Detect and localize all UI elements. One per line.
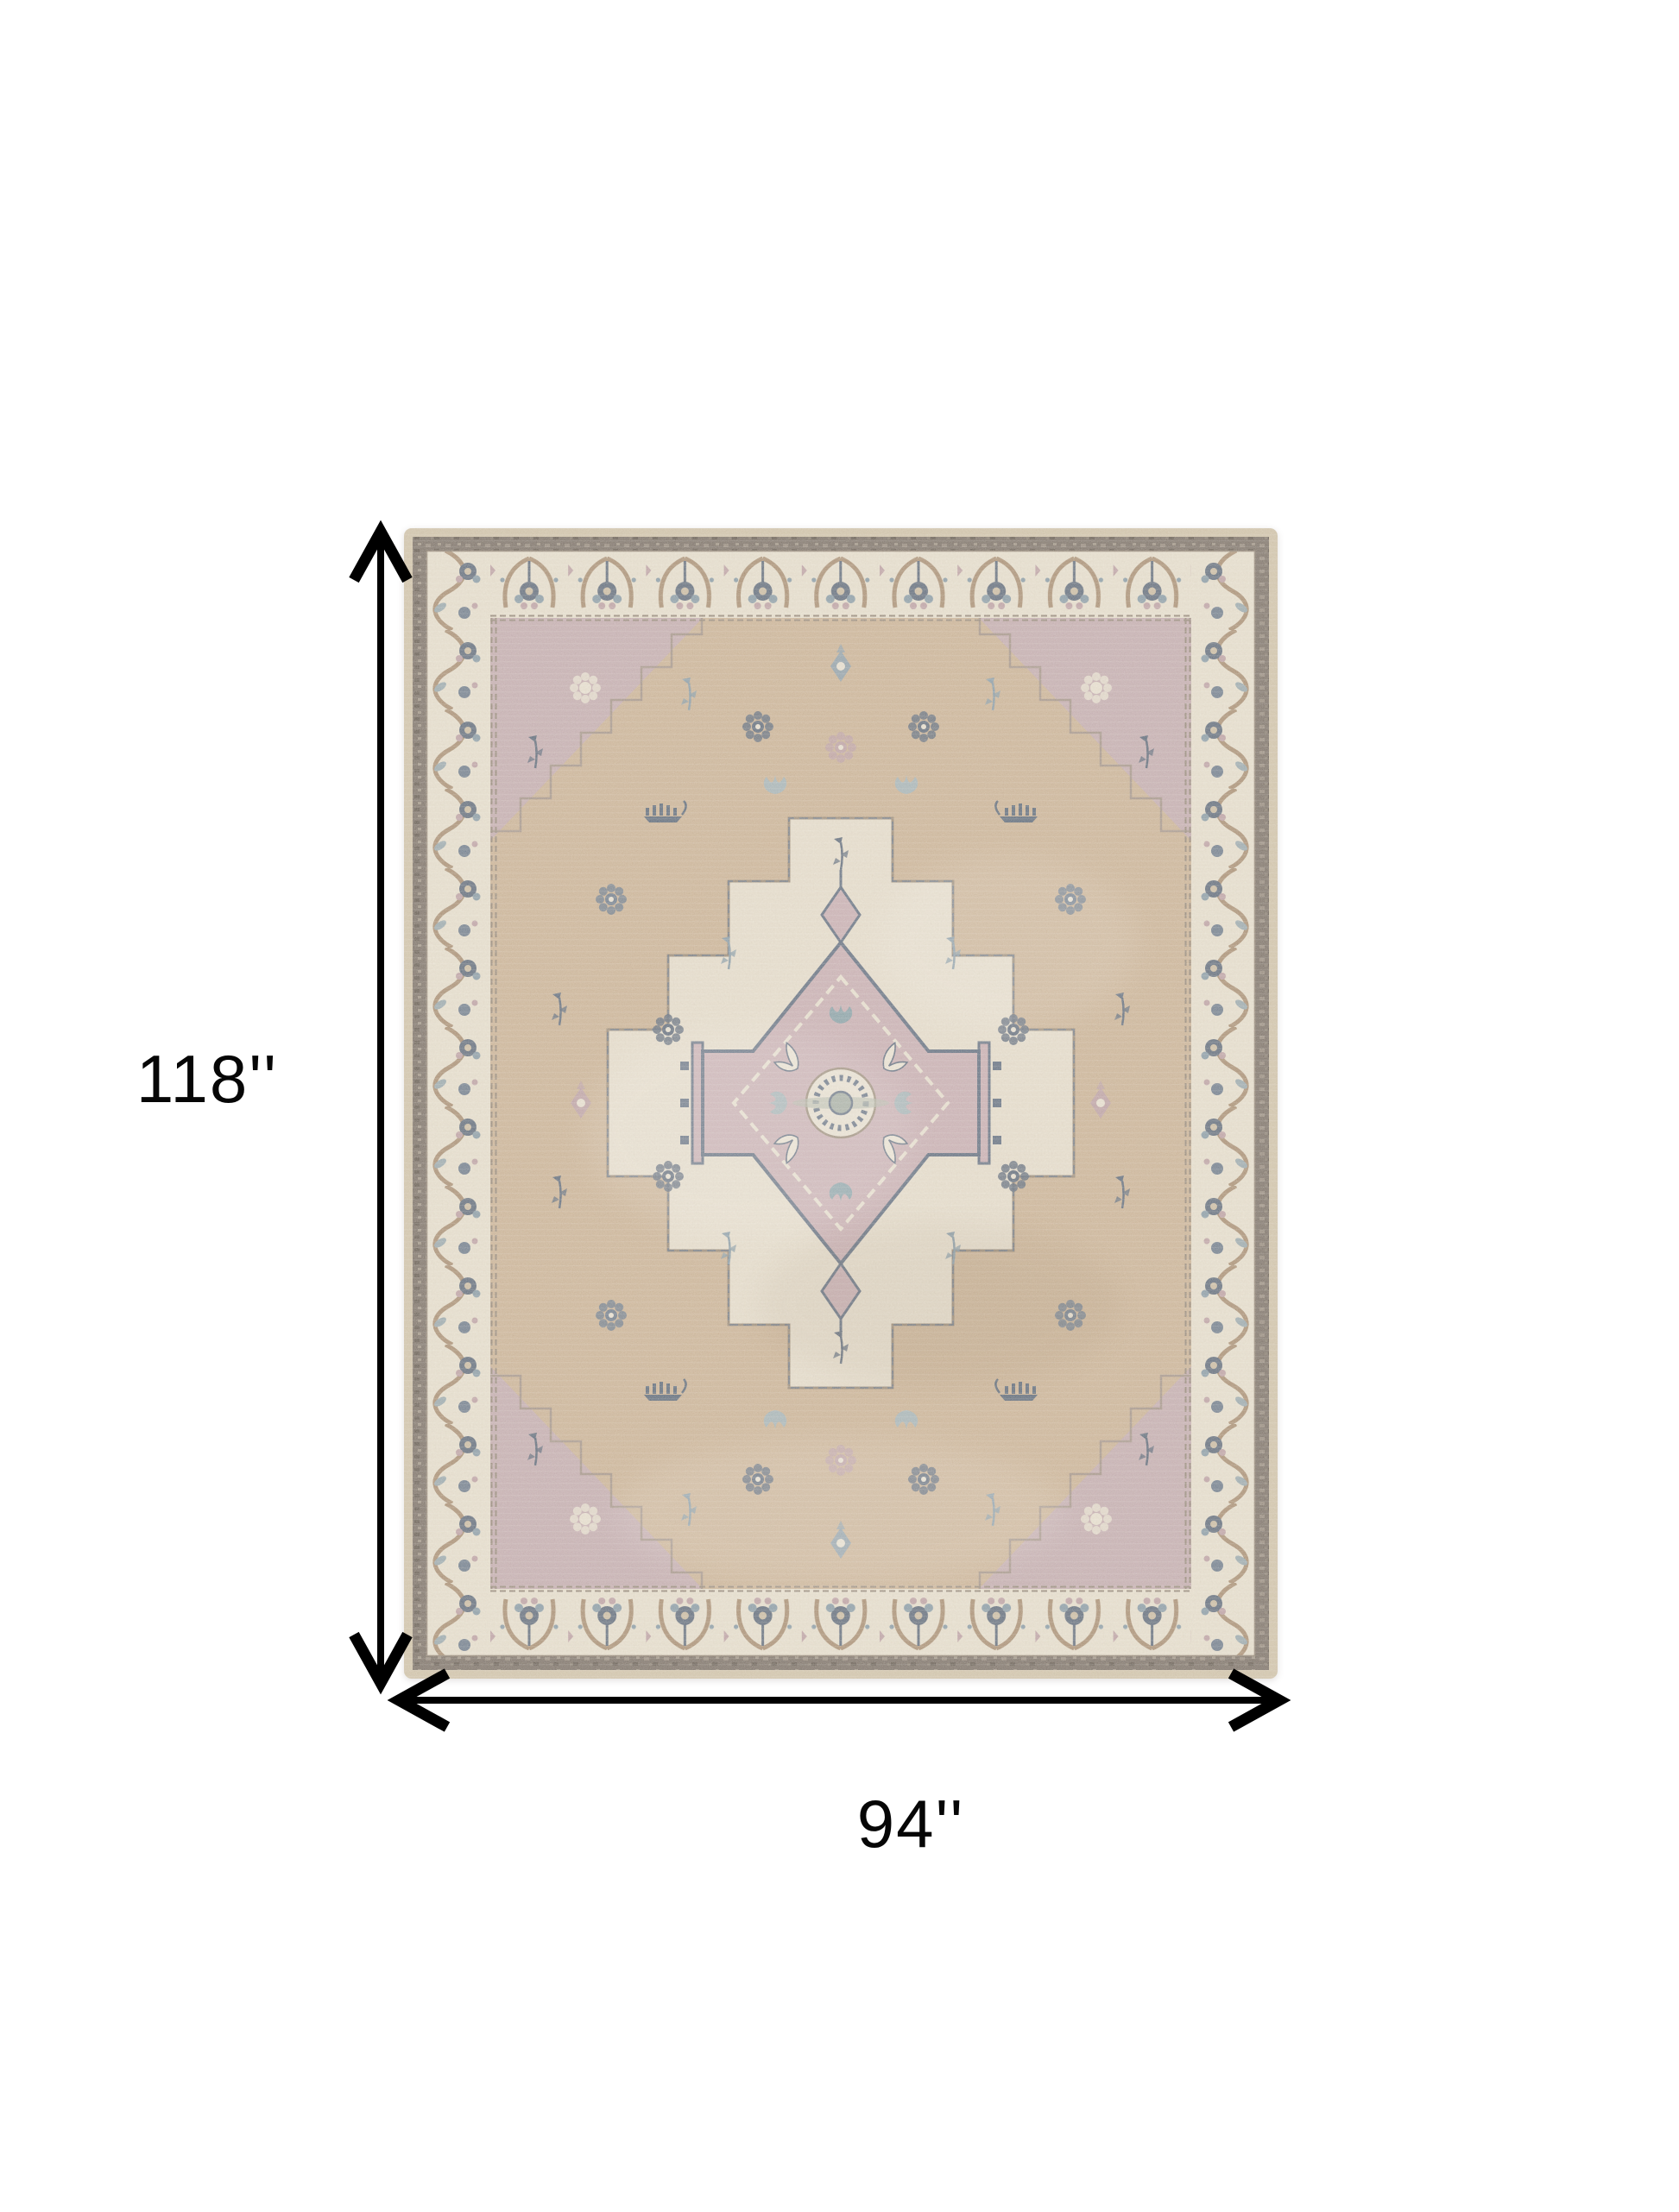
height-arrow [354, 532, 407, 1683]
dimension-diagram: 118'' 94'' [0, 0, 1679, 2212]
height-dimension-label: 118'' [119, 1040, 295, 1119]
rug-image [404, 528, 1278, 1679]
width-arrow [399, 1673, 1279, 1727]
rug-texture [404, 528, 1278, 1679]
width-dimension-label: 94'' [820, 1785, 1001, 1863]
